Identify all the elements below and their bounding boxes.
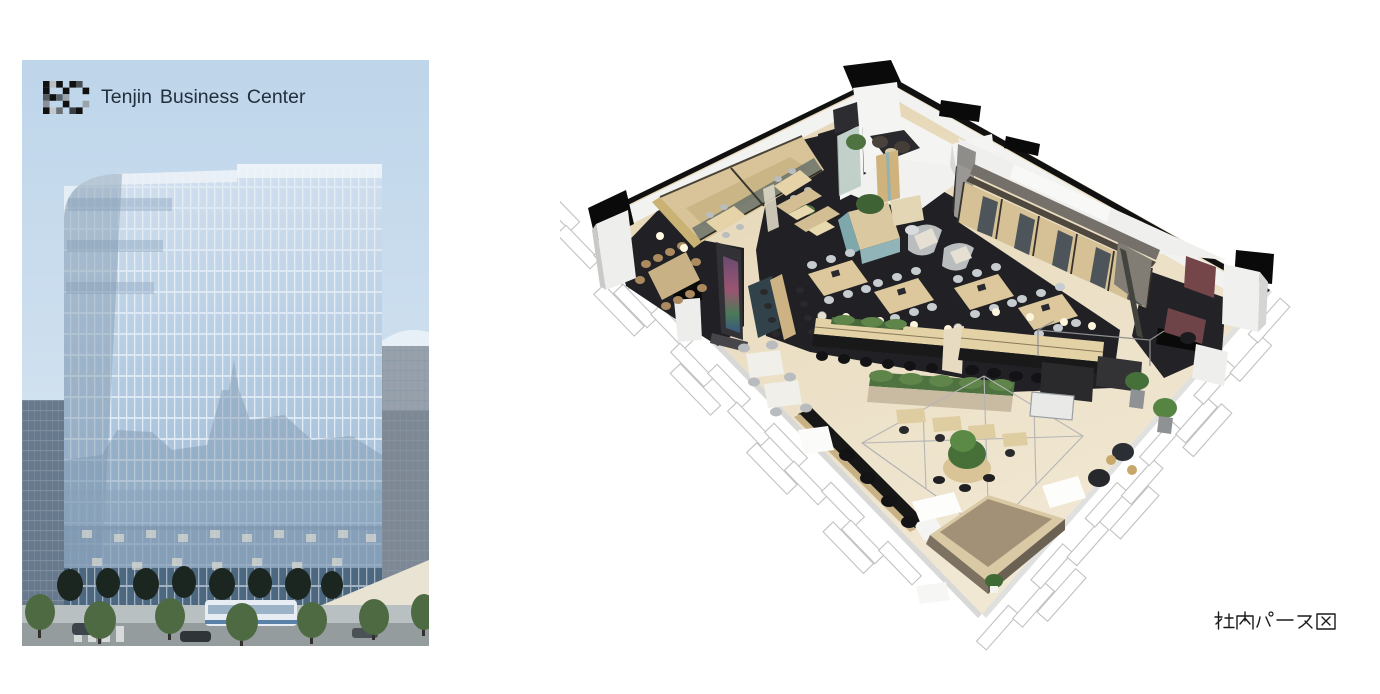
svg-text:Tenjin Business Center: Tenjin Business Center [101,86,306,108]
